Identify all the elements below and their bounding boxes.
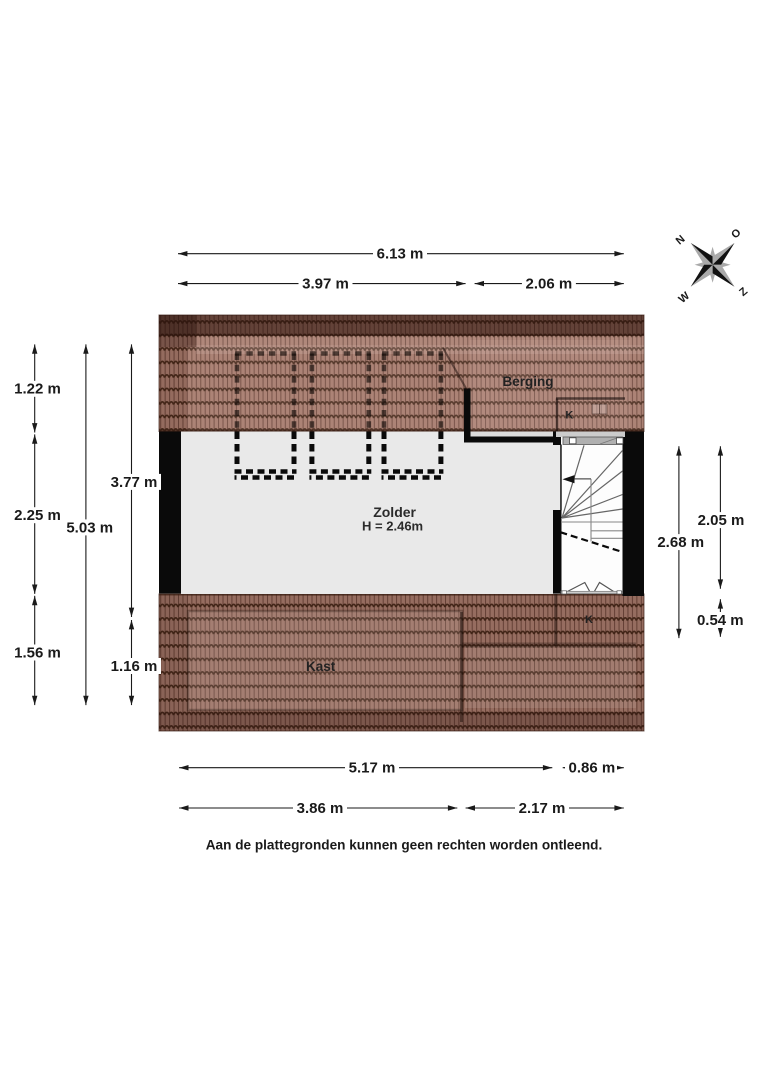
svg-text:Kast: Kast — [306, 659, 336, 674]
svg-text:2.05 m: 2.05 m — [698, 512, 745, 529]
svg-text:Aan de plattegronden kunnen ge: Aan de plattegronden kunnen geen rechten… — [206, 838, 603, 853]
svg-text:5.17 m: 5.17 m — [349, 760, 396, 777]
svg-text:0.86 m: 0.86 m — [569, 760, 616, 777]
svg-text:2.06 m: 2.06 m — [526, 276, 573, 293]
svg-text:K: K — [585, 614, 593, 626]
svg-text:0.54 m: 0.54 m — [697, 612, 744, 629]
svg-text:1.22 m: 1.22 m — [14, 381, 61, 398]
svg-text:2.17 m: 2.17 m — [519, 800, 566, 817]
svg-text:1.16 m: 1.16 m — [111, 658, 158, 675]
svg-text:3.97 m: 3.97 m — [302, 276, 349, 293]
svg-text:5.03 m: 5.03 m — [66, 519, 113, 536]
svg-text:K: K — [565, 410, 573, 422]
svg-text:1.56 m: 1.56 m — [14, 644, 61, 661]
svg-text:Berging: Berging — [502, 374, 553, 389]
svg-text:2.68 m: 2.68 m — [657, 534, 704, 551]
svg-text:6.13 m: 6.13 m — [377, 246, 424, 263]
svg-text:H = 2.46m: H = 2.46m — [362, 518, 423, 533]
svg-text:3.86 m: 3.86 m — [297, 800, 344, 817]
svg-text:3.77 m: 3.77 m — [111, 474, 158, 491]
svg-text:2.25 m: 2.25 m — [14, 507, 61, 524]
